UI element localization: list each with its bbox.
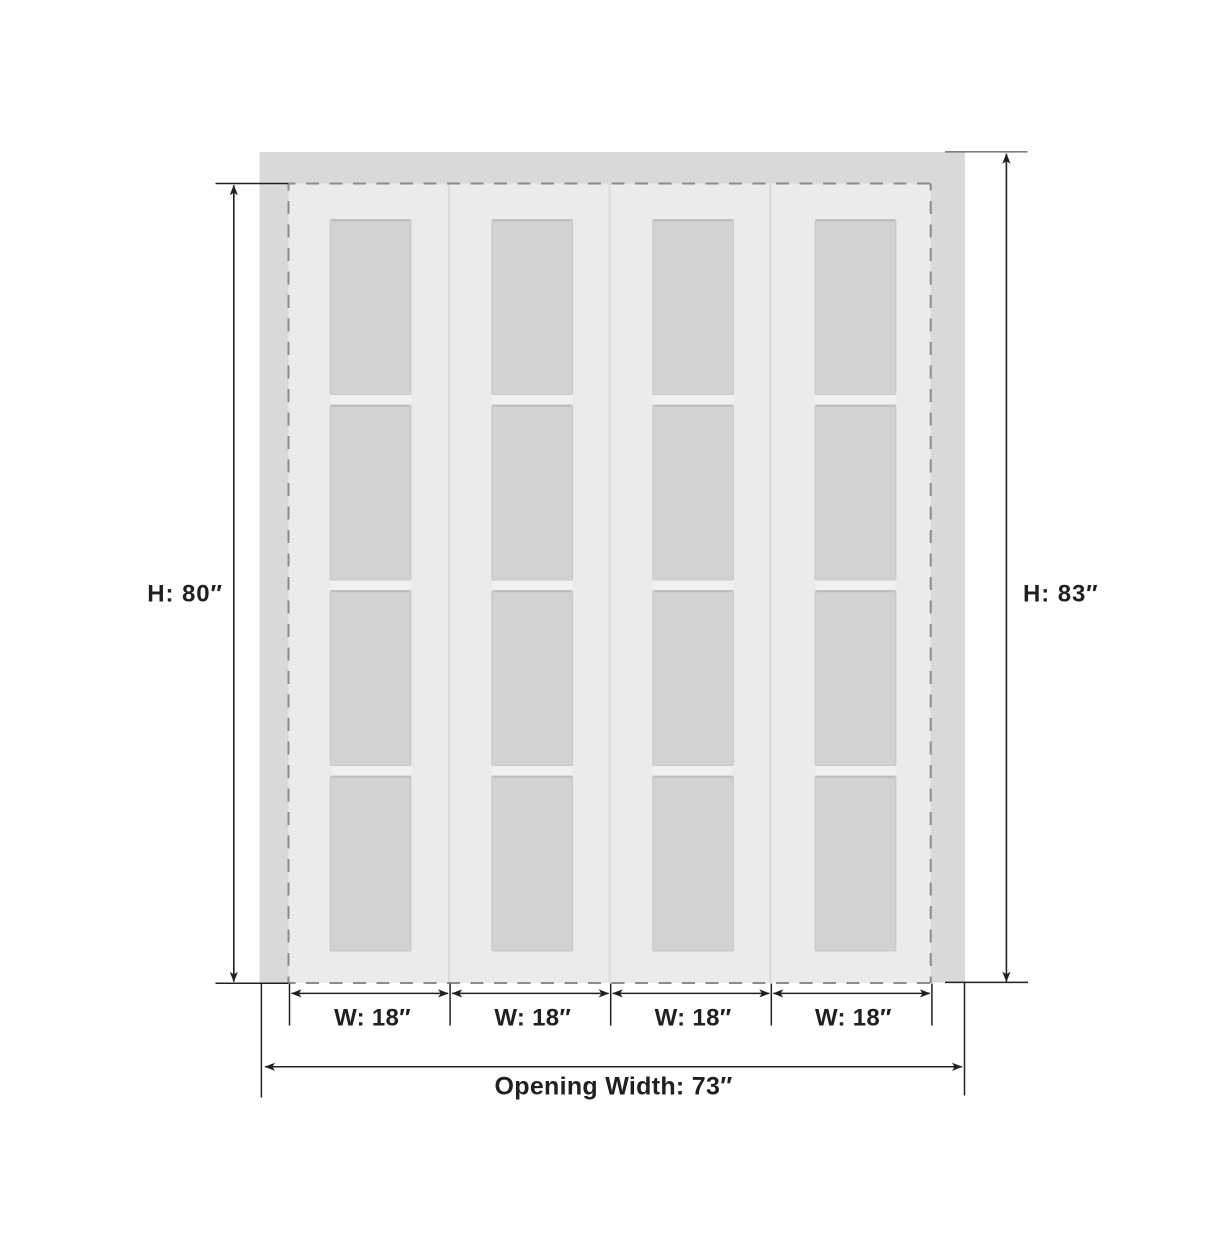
svg-text:Opening Width: 73″: Opening Width: 73″ <box>495 1073 733 1101</box>
svg-text:H: 83″: H: 83″ <box>1023 581 1099 608</box>
svg-text:W: 18″: W: 18″ <box>334 1005 411 1032</box>
svg-text:W: 18″: W: 18″ <box>494 1005 571 1032</box>
svg-text:H: 80″: H: 80″ <box>147 581 223 608</box>
svg-text:W: 18″: W: 18″ <box>815 1005 892 1032</box>
svg-text:W: 18″: W: 18″ <box>655 1005 732 1032</box>
